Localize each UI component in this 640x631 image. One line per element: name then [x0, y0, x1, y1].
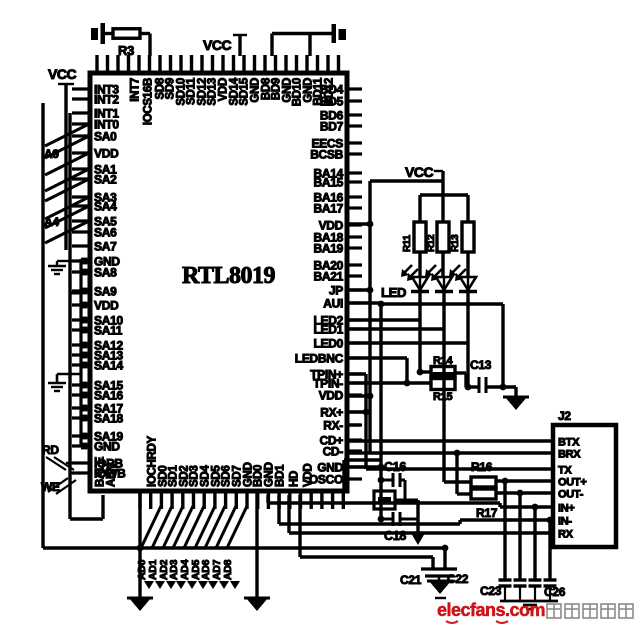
svg-text:VCC: VCC	[48, 66, 76, 82]
svg-text:SA11: SA11	[94, 323, 123, 337]
svg-text:C21: C21	[400, 573, 422, 587]
svg-text:RX+: RX+	[320, 405, 343, 419]
svg-text:R3: R3	[118, 43, 134, 58]
svg-text:LED: LED	[381, 285, 406, 300]
svg-text:BA15: BA15	[314, 175, 344, 189]
svg-text:BD12: BD12	[324, 78, 336, 106]
svg-text:VDD: VDD	[94, 146, 119, 160]
svg-text:RTL8019: RTL8019	[182, 263, 276, 289]
svg-text:LEDBNC: LEDBNC	[295, 351, 344, 365]
svg-text:C16: C16	[384, 460, 406, 474]
svg-text:A9: A9	[44, 147, 59, 161]
svg-text:VCC: VCC	[405, 164, 433, 180]
svg-text:OUT-: OUT-	[558, 489, 584, 501]
svg-text:C26: C26	[544, 585, 566, 599]
svg-text:SA4: SA4	[94, 199, 117, 213]
svg-text:R13: R13	[450, 234, 461, 252]
svg-text:VDD: VDD	[319, 388, 344, 402]
svg-text:GND: GND	[94, 439, 120, 453]
svg-text:SA7: SA7	[94, 239, 117, 253]
svg-text:elecfans.com: elecfans.com	[437, 600, 545, 620]
svg-text:C22: C22	[447, 572, 469, 586]
svg-text:RX: RX	[558, 529, 574, 541]
svg-text:BA17: BA17	[314, 201, 344, 215]
svg-text:HD: HD	[289, 471, 301, 487]
svg-text:R15: R15	[433, 391, 452, 403]
svg-text:BRX: BRX	[558, 449, 581, 461]
svg-text:SA6: SA6	[94, 225, 117, 239]
svg-text:IN-: IN-	[558, 516, 572, 528]
svg-text:BD1: BD1	[275, 464, 287, 487]
svg-text:R17: R17	[476, 506, 498, 520]
svg-text:TX: TX	[558, 465, 572, 477]
svg-text:BTX: BTX	[558, 437, 580, 449]
svg-text:IN+: IN+	[558, 503, 575, 515]
svg-text:LED0: LED0	[314, 336, 344, 350]
svg-text:R12: R12	[426, 234, 437, 252]
svg-text:SA9: SA9	[94, 284, 117, 298]
svg-text:BD7: BD7	[320, 119, 344, 133]
svg-text:JP: JP	[329, 283, 343, 297]
svg-text:J2: J2	[558, 409, 571, 423]
svg-text:C13: C13	[470, 358, 492, 372]
svg-text:AEN: AEN	[106, 464, 118, 487]
svg-text:RD: RD	[42, 443, 59, 457]
svg-text:R16: R16	[471, 460, 493, 474]
svg-text:SA8: SA8	[94, 265, 117, 279]
svg-text:AD8: AD8	[222, 559, 234, 580]
svg-text:BA19: BA19	[314, 241, 344, 255]
svg-text:OUT+: OUT+	[558, 477, 586, 489]
svg-text:LED1: LED1	[314, 322, 344, 336]
svg-text:C18: C18	[384, 529, 406, 543]
svg-text:IOCS16B: IOCS16B	[143, 78, 155, 125]
svg-text:R11: R11	[402, 234, 413, 252]
svg-text:A4: A4	[44, 215, 59, 229]
svg-text:SA2: SA2	[94, 172, 117, 186]
svg-text:INT7: INT7	[130, 78, 142, 102]
svg-text:RX-: RX-	[323, 418, 343, 432]
svg-text:SA0: SA0	[94, 129, 117, 143]
svg-text:AUI: AUI	[323, 296, 343, 310]
svg-text:SA14: SA14	[94, 358, 123, 372]
svg-text:C23: C23	[480, 584, 502, 598]
svg-text:VCC: VCC	[203, 37, 231, 53]
svg-text:VDD: VDD	[303, 464, 315, 487]
svg-text:VDD: VDD	[94, 298, 119, 312]
svg-text:CD-: CD-	[323, 444, 344, 458]
svg-text:BCSB: BCSB	[310, 147, 343, 161]
svg-text:BA21: BA21	[314, 269, 344, 283]
svg-text:R14: R14	[433, 355, 453, 367]
svg-text:SA18: SA18	[94, 411, 123, 425]
svg-text:SA16: SA16	[94, 388, 123, 402]
svg-text:INT2: INT2	[94, 92, 119, 106]
